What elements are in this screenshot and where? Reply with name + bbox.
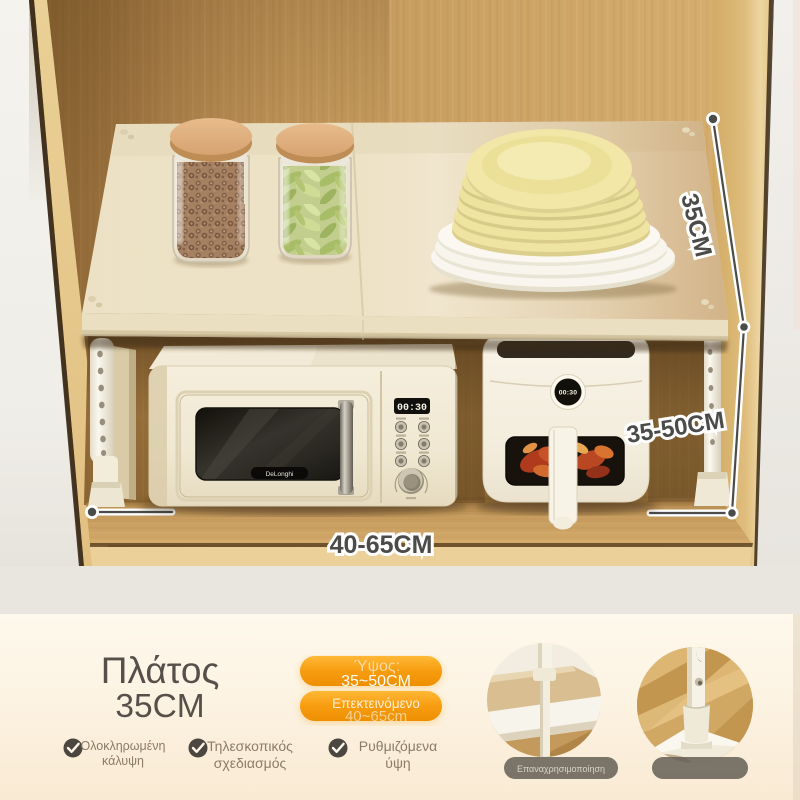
- svg-text:00:30: 00:30: [559, 390, 577, 397]
- svg-text:40-65CM: 40-65CM: [330, 531, 433, 559]
- svg-text:Ολοκληρωμένη: Ολοκληρωμένη: [80, 739, 165, 753]
- svg-text:00:30: 00:30: [397, 403, 427, 414]
- svg-text:κάλυψη: κάλυψη: [102, 754, 144, 768]
- svg-text:35CM: 35CM: [115, 688, 204, 725]
- svg-text:Ρυθμιζόμενα: Ρυθμιζόμενα: [359, 738, 437, 754]
- svg-text:40~65cm: 40~65cm: [345, 708, 407, 725]
- svg-text:Επαναχρησιμοποίηση: Επαναχρησιμοποίηση: [517, 764, 605, 774]
- svg-text:Τηλεσκοπικός: Τηλεσκοπικός: [207, 738, 293, 754]
- svg-text:Πλάτος: Πλάτος: [101, 650, 220, 691]
- svg-text:σχεδιασμός: σχεδιασμός: [214, 755, 287, 771]
- svg-text:DeLonghi: DeLonghi: [266, 471, 294, 478]
- svg-text:35~50CM: 35~50CM: [341, 673, 411, 690]
- svg-text:ύψη: ύψη: [385, 755, 410, 771]
